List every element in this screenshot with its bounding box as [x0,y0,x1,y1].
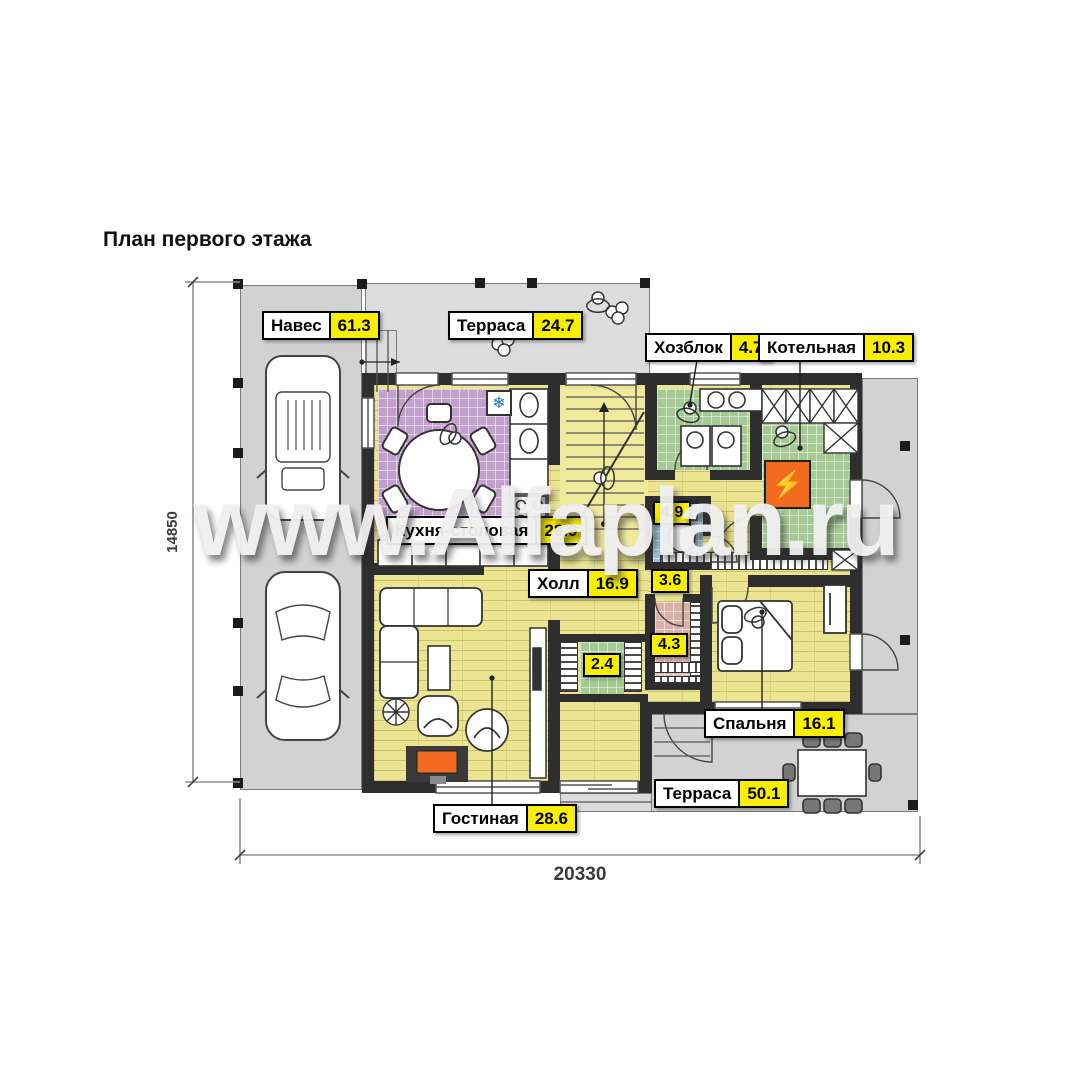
room-area: 28.6 [528,806,575,831]
area-badge-wardrobe: 4.3 [650,633,688,657]
room-name: Навес [264,313,331,338]
room-label-terrace-top: Терраса 24.7 [448,311,583,340]
room-label-hall: Холл 16.9 [528,569,638,598]
room-name: Холл [530,571,589,596]
page-title: План первого этажа [103,228,312,252]
room-area: 61.3 [331,313,378,338]
floor-utility [657,389,749,470]
boiler-glyph: ⚡ [771,469,803,500]
wardrobe-shelf-2 [652,676,708,687]
room-area: 16.9 [589,571,636,596]
area-badge-corridor: 3.6 [651,569,689,593]
area-badge-pantry: 2.4 [583,653,621,677]
room-name: Хозблок [647,335,732,360]
floor-plan-page: План первого этажа ❄ ⚡ [0,0,1080,1080]
room-label-boiler-room: Котельная 10.3 [758,333,914,362]
dimension-width: 20330 [520,864,640,886]
room-area: 28.9 [537,518,584,543]
room-name: Кухня-столовая [388,518,537,543]
room-area: 10.3 [865,335,912,360]
dimension-height: 14850 [164,496,184,568]
fridge-icon: ❄ [486,390,512,416]
room-label-living: Гостиная 28.6 [433,804,577,833]
room-label-bedroom: Спальня 16.1 [704,709,845,738]
room-name: Терраса [450,313,534,338]
pantry-shelf-left [560,642,578,692]
pantry-shelf-right [624,642,642,692]
area-badge-hall-niche: 4.9 [653,501,691,525]
room-area: 16.1 [795,711,842,736]
carport-slab [240,285,362,790]
fridge-glyph: ❄ [492,393,505,413]
room-name: Гостиная [435,806,528,831]
room-area: 50.1 [740,781,787,806]
room-label-terrace-bottom: Терраса 50.1 [654,779,789,808]
room-label-utility: Хозблок 4.7 [645,333,772,362]
wardrobe-shelf-1 [652,662,708,673]
room-name: Терраса [656,781,740,806]
room-name: Спальня [706,711,795,736]
right-apron-slab [862,378,918,714]
hall-closet [660,552,828,570]
room-area: 24.7 [534,313,581,338]
room-label-kitchen: Кухня-столовая 28.9 [386,516,587,545]
room-label-carport: Навес 61.3 [262,311,380,340]
room-name: Котельная [760,335,865,360]
boiler-icon: ⚡ [764,460,811,509]
